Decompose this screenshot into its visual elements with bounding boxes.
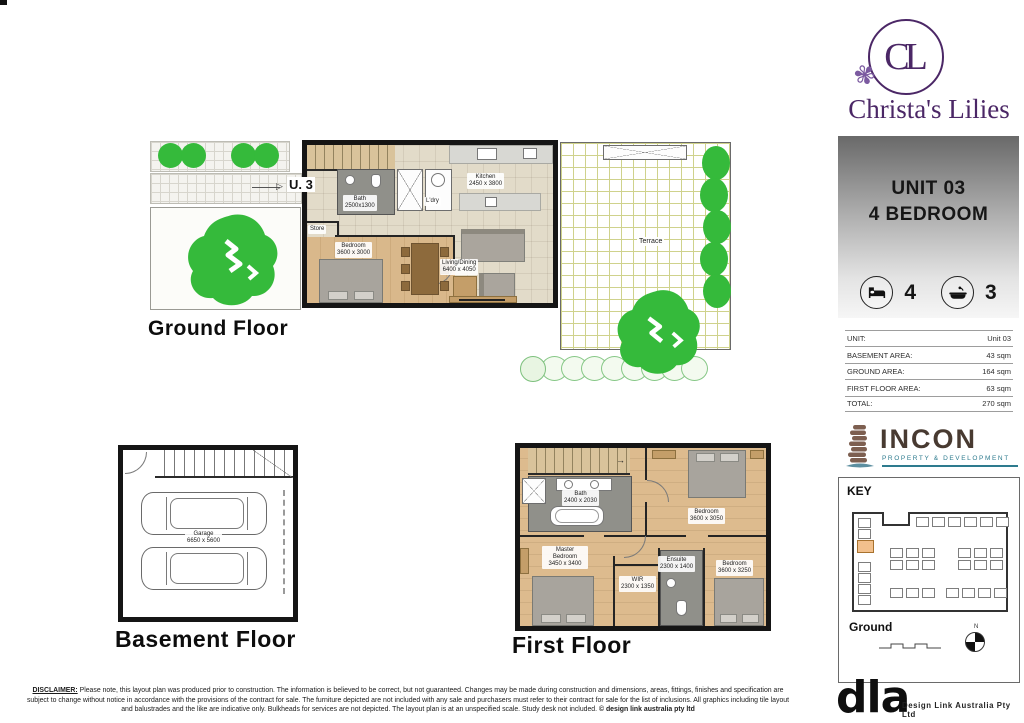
key-map-unit-cell	[858, 562, 871, 572]
table-row: FIRST FLOOR AREA: 63 sqm	[845, 379, 1013, 395]
wall	[520, 535, 584, 537]
room-label-ensuite: Ensuite 2300 x 1400	[658, 556, 695, 572]
store-wall	[337, 221, 339, 235]
bath-icon	[941, 276, 974, 309]
cooktop-fixture	[477, 148, 497, 160]
key-map-unit-cell	[996, 517, 1009, 527]
north-label: N	[974, 624, 978, 630]
key-floor-label: Ground	[849, 620, 892, 634]
ground-stairs	[307, 145, 395, 171]
car-outline	[141, 492, 267, 535]
key-map-unit-cell	[858, 573, 871, 583]
hedge-tree-icon	[703, 274, 731, 308]
key-map-unit-cell	[958, 548, 971, 558]
disclaimer-copyright: © design link australia pty ltd	[599, 706, 695, 713]
bathtub-inner	[555, 509, 599, 523]
key-map-unit-cell	[978, 588, 991, 598]
toilet-fixture	[371, 174, 381, 188]
basin-fixture	[564, 480, 573, 489]
row-value: 63 sqm	[986, 384, 1011, 393]
key-map-unit-cell	[906, 560, 919, 570]
compass-icon	[965, 632, 985, 652]
unit-marker-label: U. 3	[287, 177, 315, 192]
first-floor-unit: → Bath 2400 x 2030 Bedroom	[515, 443, 771, 631]
large-tree-icon	[610, 287, 706, 379]
key-map-unit-cell	[958, 560, 971, 570]
row-label: UNIT:	[847, 334, 866, 343]
wall	[703, 548, 705, 626]
bed-count: 4	[904, 281, 916, 305]
wall	[645, 448, 647, 480]
brand-name: Christa's Lilies	[836, 94, 1022, 125]
key-site-plan	[852, 512, 1008, 612]
incon-tagline: PROPERTY & DEVELOPMENT	[882, 455, 1018, 467]
key-map-unit-cell	[858, 595, 871, 605]
brand-monogram: CL	[884, 35, 928, 79]
bed-furniture	[319, 259, 383, 303]
row-label: GROUND AREA:	[847, 367, 905, 376]
dining-chair	[401, 247, 410, 257]
pillow	[354, 291, 374, 300]
garage-door-dashed	[283, 490, 285, 594]
bed-icon	[860, 276, 893, 309]
scale-bar	[877, 640, 953, 652]
kitchen-bench	[449, 145, 553, 164]
basement-floor-unit: Garage 6650 x 5600	[118, 445, 298, 622]
room-label-bedroom-right: Bedroom 3600 x 3250	[716, 560, 753, 576]
room-label-master: Master Bedroom 3450 x 3400	[542, 546, 588, 569]
car-cabin	[170, 498, 244, 529]
room-label-terrace: Terrace	[637, 237, 664, 246]
key-map-unit-cell	[974, 548, 987, 558]
car-line	[166, 552, 167, 585]
car-cabin	[170, 553, 244, 584]
terrace-planter-box	[603, 145, 687, 160]
wall	[613, 556, 615, 626]
site-plan-notch	[882, 512, 910, 526]
pillow	[328, 291, 348, 300]
dining-chair	[401, 281, 410, 291]
hedge-tree-icon	[700, 178, 728, 212]
unit-counts-row: 4 3	[838, 276, 1019, 309]
washer-fixture	[431, 173, 445, 187]
basement-floor-title: Basement Floor	[115, 626, 296, 653]
ground-floor-title: Ground Floor	[148, 317, 288, 341]
key-map-unit-cell	[906, 548, 919, 558]
table-row: UNIT: Unit 03	[845, 330, 1013, 346]
first-stairs	[528, 448, 630, 475]
tree-icon	[181, 143, 206, 168]
key-map-unit-cell	[922, 560, 935, 570]
area-table: UNIT: Unit 03 BASEMENT AREA: 43 sqm GROU…	[845, 330, 1013, 412]
bed-furniture	[532, 576, 594, 626]
room-label-bath: Bath 2400 x 2030	[562, 490, 599, 506]
row-label: BASEMENT AREA:	[847, 351, 912, 360]
room-label-garage: Garage 6650 x 5600	[185, 530, 222, 546]
wardrobe-furniture	[652, 450, 676, 459]
disclaimer: DISCLAIMER: Please note, this layout pla…	[22, 686, 794, 715]
tree-icon	[254, 143, 279, 168]
shower-fixture	[522, 478, 546, 504]
key-map-unit-cell	[922, 588, 935, 598]
key-map-unit-cell	[916, 517, 929, 527]
incon-name: INCON	[880, 424, 977, 455]
wardrobe-furniture	[750, 450, 764, 459]
key-map-unit-cell	[990, 560, 1003, 570]
dining-chair	[401, 264, 410, 274]
door-arc	[647, 480, 669, 502]
linen-cupboard	[397, 169, 423, 211]
disclaimer-lead: DISCLAIMER:	[33, 687, 78, 694]
key-map-unit-cell	[994, 588, 1007, 598]
row-label: FIRST FLOOR AREA:	[847, 384, 921, 393]
floorplan-sheet: ▷ U. 3 Bath 2500x1300 L'dry Kitchen	[0, 0, 1024, 723]
dla-logo: dla	[836, 672, 909, 723]
unit-type: 4 BEDROOM	[838, 204, 1019, 226]
room-label-living: Living/Dining 6400 x 4050	[440, 259, 478, 275]
table-row: TOTAL: 270 sqm	[845, 396, 1013, 412]
room-label-kitchen: Kitchen 2450 x 3800	[467, 173, 504, 189]
tv-line	[459, 299, 505, 301]
pillow	[566, 614, 586, 623]
row-value: 43 sqm	[986, 351, 1011, 360]
incon-logo: INCON PROPERTY & DEVELOPMENT	[846, 424, 1018, 474]
room-label-store: Store	[308, 225, 326, 234]
tree-icon	[231, 143, 256, 168]
room-label-laundry: L'dry	[424, 197, 441, 206]
pillow	[742, 614, 759, 623]
key-map-unit-cell	[890, 588, 903, 598]
car-outline	[141, 547, 267, 590]
table-row: BASEMENT AREA: 43 sqm	[845, 346, 1013, 362]
key-panel: KEY	[838, 477, 1020, 683]
hedge-tree-icon	[700, 242, 728, 276]
incon-building-icon	[846, 424, 874, 470]
stair-diagonal	[253, 450, 293, 478]
row-value: Unit 03	[987, 334, 1011, 343]
key-title: KEY	[847, 484, 872, 498]
unit-number: UNIT 03	[838, 178, 1019, 200]
car-line	[247, 552, 248, 585]
dining-table-furniture	[411, 243, 439, 295]
unit-info-panel: UNIT 03 4 BEDROOM 4 3	[838, 136, 1019, 318]
key-map-unit-cell	[858, 529, 871, 539]
unit-marker-arrowhead: ▷	[276, 181, 283, 192]
bedroom-wall	[335, 235, 455, 237]
island-sink-fixture	[485, 197, 497, 207]
key-map-unit-cell	[980, 517, 993, 527]
key-map-unit-cell	[890, 548, 903, 558]
tree-icon	[158, 143, 183, 168]
basin-fixture	[666, 578, 676, 588]
dla-company-name: Design Link Australia Pty Ltd	[902, 701, 1024, 719]
room-label-bath: Bath 2500x1300	[343, 195, 377, 211]
row-value: 164 sqm	[982, 367, 1011, 376]
bath-count: 3	[985, 281, 997, 305]
row-value: 270 sqm	[982, 399, 1011, 408]
stair-arrow: →	[616, 455, 625, 465]
wardrobe-furniture	[520, 548, 529, 574]
key-map-unit-cell	[974, 560, 987, 570]
pillow	[720, 614, 737, 623]
door-arc	[624, 536, 646, 558]
bed-furniture	[714, 578, 764, 626]
first-floor-title: First Floor	[512, 632, 631, 659]
key-map-unit-cell	[932, 517, 945, 527]
key-map-unit-cell	[906, 588, 919, 598]
dining-chair	[440, 247, 449, 257]
room-label-bedroom: Bedroom 3600 x 3000	[335, 242, 372, 258]
wall	[645, 502, 647, 536]
door-arc	[125, 452, 147, 474]
key-map-unit-cell	[858, 518, 871, 528]
key-map-unit-cell	[858, 584, 871, 594]
room-label-bedroom-top: Bedroom 3600 x 3050	[688, 508, 725, 524]
key-map-unit-cell	[962, 588, 975, 598]
row-label: TOTAL:	[847, 399, 873, 408]
bed-furniture	[688, 450, 746, 498]
wall	[613, 564, 660, 566]
car-line	[166, 497, 167, 530]
table-row: GROUND AREA: 164 sqm	[845, 363, 1013, 379]
basin-fixture	[345, 175, 355, 185]
key-map-unit-cell	[946, 588, 959, 598]
key-map-unit-cell	[922, 548, 935, 558]
brand-logo: CL ✾ Christa's Lilies	[836, 8, 1022, 130]
ground-floor-unit: Bath 2500x1300 L'dry Kitchen 2450 x 3800…	[302, 140, 558, 308]
car-line	[247, 497, 248, 530]
pillow	[541, 614, 561, 623]
hedge-tree-icon	[703, 210, 731, 244]
kitchen-sink-fixture	[523, 148, 537, 159]
sofa-furniture	[461, 229, 525, 262]
key-map-highlight-unit	[857, 540, 874, 553]
hedge-tree-icon	[702, 146, 730, 180]
room-label-wir: WIR 2300 x 1350	[619, 576, 656, 592]
pillow	[720, 453, 739, 462]
dining-chair	[440, 281, 449, 291]
large-tree-icon	[180, 211, 284, 311]
key-map-unit-cell	[890, 560, 903, 570]
kitchen-island	[459, 193, 541, 211]
key-map-unit-cell	[948, 517, 961, 527]
store-wall	[307, 221, 337, 223]
key-map-unit-cell	[990, 548, 1003, 558]
key-map-unit-cell	[964, 517, 977, 527]
basin-fixture	[590, 480, 599, 489]
page-edge-mark	[0, 0, 7, 5]
toilet-fixture	[676, 600, 687, 616]
wall	[708, 535, 766, 537]
bush-tree-icon	[520, 356, 546, 382]
pillow	[696, 453, 715, 462]
